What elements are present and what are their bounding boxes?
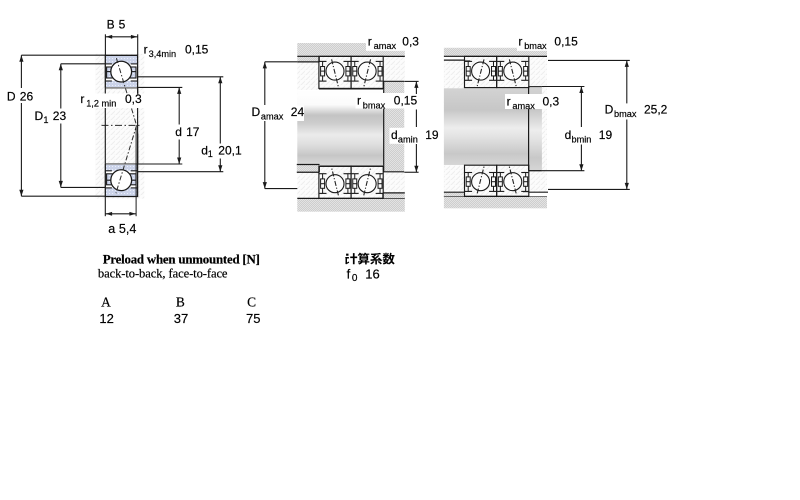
svg-text:19: 19	[425, 128, 439, 142]
svg-text:bmax: bmax	[363, 100, 386, 110]
svg-text:20,1: 20,1	[218, 143, 242, 157]
svg-text:r: r	[368, 34, 372, 48]
svg-text:12: 12	[99, 311, 113, 326]
svg-text:D: D	[7, 89, 16, 103]
svg-text:1,2 min: 1,2 min	[86, 99, 116, 109]
svg-text:bmax: bmax	[614, 109, 637, 119]
svg-text:5,4: 5,4	[119, 222, 137, 236]
svg-text:bmin: bmin	[572, 135, 592, 145]
svg-text:23: 23	[53, 109, 67, 123]
svg-text:r: r	[80, 92, 84, 106]
svg-text:Preload when unmounted [N]: Preload when unmounted [N]	[103, 252, 260, 266]
svg-text:f: f	[347, 266, 351, 281]
svg-text:0: 0	[352, 273, 358, 284]
svg-text:r: r	[144, 42, 148, 56]
svg-text:d: d	[565, 128, 572, 142]
svg-text:25,2: 25,2	[644, 103, 668, 117]
svg-text:1: 1	[43, 115, 48, 125]
svg-text:19: 19	[599, 128, 613, 142]
svg-text:r: r	[518, 34, 522, 48]
svg-text:amax: amax	[512, 101, 535, 111]
svg-text:26: 26	[20, 89, 34, 103]
svg-text:back-to-back, face-to-face: back-to-back, face-to-face	[98, 267, 228, 281]
svg-text:amin: amin	[398, 135, 418, 145]
svg-text:75: 75	[246, 311, 260, 326]
svg-text:a: a	[108, 222, 115, 236]
svg-text:37: 37	[174, 311, 188, 326]
svg-text:5: 5	[119, 18, 126, 32]
svg-text:24: 24	[291, 105, 305, 119]
svg-text:amax: amax	[374, 41, 397, 51]
svg-text:0,3: 0,3	[543, 95, 560, 109]
svg-text:0,15: 0,15	[185, 42, 209, 56]
svg-text:D: D	[605, 103, 614, 117]
svg-text:0,15: 0,15	[394, 94, 418, 108]
svg-text:3,4min: 3,4min	[149, 49, 177, 59]
svg-text:C: C	[247, 294, 256, 309]
svg-text:B: B	[176, 294, 185, 309]
svg-text:17: 17	[186, 125, 200, 139]
svg-text:0,15: 0,15	[554, 34, 578, 48]
svg-text:16: 16	[365, 266, 379, 281]
svg-text:D: D	[35, 109, 44, 123]
svg-text:amax: amax	[261, 112, 284, 122]
svg-text:r: r	[357, 94, 361, 108]
svg-text:0,3: 0,3	[125, 92, 142, 106]
svg-text:r: r	[507, 95, 511, 109]
svg-text:d: d	[391, 128, 398, 142]
svg-text:d: d	[175, 125, 182, 139]
svg-text:1: 1	[208, 149, 213, 159]
svg-text:D: D	[252, 105, 261, 119]
svg-text:bmax: bmax	[524, 41, 547, 51]
svg-text:0,3: 0,3	[402, 34, 419, 48]
svg-text:B: B	[107, 18, 115, 32]
svg-text:A: A	[101, 294, 111, 309]
